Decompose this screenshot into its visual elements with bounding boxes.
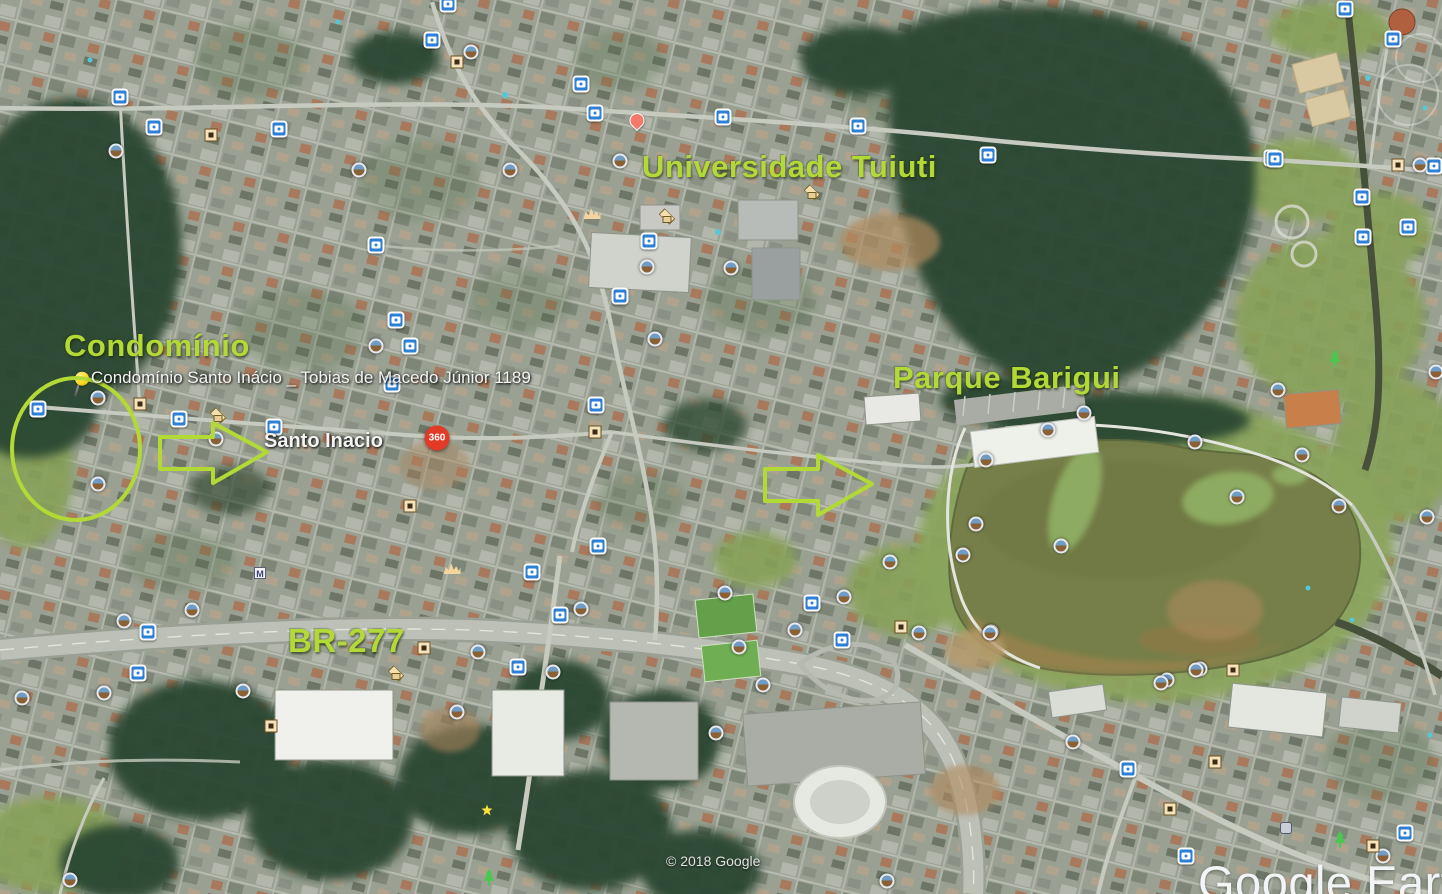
tree-icon[interactable]	[1329, 350, 1342, 367]
photo-frame-icon[interactable]	[1367, 840, 1380, 853]
panoramio-icon[interactable]	[709, 726, 724, 741]
panoramio-icon[interactable]	[1230, 490, 1245, 505]
panoramio-icon[interactable]	[1077, 406, 1092, 421]
camera-icon[interactable]	[588, 397, 605, 414]
camera-icon[interactable]	[368, 237, 385, 254]
panoramio-icon[interactable]	[969, 517, 984, 532]
camera-icon[interactable]	[402, 338, 419, 355]
photo-frame-icon[interactable]	[265, 720, 278, 733]
camera-icon[interactable]	[384, 376, 401, 393]
camera-icon[interactable]	[424, 32, 441, 49]
panoramio-icon[interactable]	[1295, 448, 1310, 463]
panoramio-icon[interactable]	[369, 339, 384, 354]
panoramio-icon[interactable]	[640, 260, 655, 275]
panoramio-icon[interactable]	[1420, 510, 1435, 525]
panoramio-icon[interactable]	[450, 705, 465, 720]
panoramio-icon[interactable]	[1429, 365, 1442, 380]
panoramio-icon[interactable]	[1054, 539, 1069, 554]
metro-icon[interactable]: M	[254, 567, 266, 579]
school-icon[interactable]	[387, 666, 404, 680]
panoramio-icon[interactable]	[1189, 663, 1204, 678]
panoramio-icon[interactable]	[983, 626, 998, 641]
photo-frame-icon[interactable]	[895, 621, 908, 634]
panoramio-icon[interactable]	[91, 391, 106, 406]
panoramio-icon[interactable]	[352, 163, 367, 178]
photo-frame-icon[interactable]	[451, 56, 464, 69]
camera-icon[interactable]	[140, 624, 157, 641]
pushpin-icon[interactable]	[72, 372, 90, 399]
camera-icon[interactable]	[1400, 219, 1417, 236]
photo-frame-icon[interactable]	[1164, 803, 1177, 816]
camera-icon[interactable]	[715, 109, 732, 126]
star-icon[interactable]	[482, 805, 493, 816]
school-icon[interactable]	[803, 185, 820, 199]
camera-icon[interactable]	[1397, 825, 1414, 842]
panoramio-icon[interactable]	[883, 555, 898, 570]
panoramio-icon[interactable]	[574, 602, 589, 617]
red-pin-icon[interactable]	[626, 110, 647, 131]
camera-icon[interactable]	[266, 419, 283, 436]
panoramio-icon[interactable]	[97, 686, 112, 701]
marker-layer: 360M	[0, 0, 1442, 894]
photo-frame-icon[interactable]	[1209, 756, 1222, 769]
panoramio-icon[interactable]	[837, 590, 852, 605]
misc-icon[interactable]	[1280, 822, 1292, 834]
panoramio-icon[interactable]	[63, 873, 78, 888]
camera-icon[interactable]	[1178, 848, 1195, 865]
camera-icon[interactable]	[1120, 761, 1137, 778]
camera-icon[interactable]	[1354, 189, 1371, 206]
panoramio-icon[interactable]	[648, 332, 663, 347]
panoramio-icon[interactable]	[1271, 383, 1286, 398]
camera-icon[interactable]	[1385, 31, 1402, 48]
camera-icon[interactable]	[612, 288, 629, 305]
photo-frame-icon[interactable]	[205, 129, 218, 142]
photo-frame-icon[interactable]	[1227, 664, 1240, 677]
panoramio-icon[interactable]	[109, 144, 124, 159]
panoramio-icon[interactable]	[185, 603, 200, 618]
camera-icon[interactable]	[524, 564, 541, 581]
panoramio-icon[interactable]	[1041, 423, 1056, 438]
panoramio-icon[interactable]	[1332, 499, 1347, 514]
panoramio-icon[interactable]	[732, 640, 747, 655]
panoramio-icon[interactable]	[724, 261, 739, 276]
camera-icon[interactable]	[1337, 1, 1354, 18]
photo-frame-icon[interactable]	[134, 398, 147, 411]
photo-frame-icon[interactable]	[589, 426, 602, 439]
panoramio-icon[interactable]	[1188, 435, 1203, 450]
panoramio-icon[interactable]	[236, 684, 251, 699]
camera-icon[interactable]	[850, 118, 867, 135]
panoramio-icon[interactable]	[756, 678, 771, 693]
camera-icon[interactable]	[510, 659, 527, 676]
camera-icon[interactable]	[573, 76, 590, 93]
panoramio-icon[interactable]	[91, 477, 106, 492]
camera-icon[interactable]	[1267, 151, 1284, 168]
photo-frame-icon[interactable]	[418, 642, 431, 655]
panoramio-icon[interactable]	[1066, 735, 1081, 750]
camera-icon[interactable]	[1426, 158, 1442, 175]
map-canvas[interactable]: 360M Condomínio Universidade Tuiuti Parq…	[0, 0, 1442, 894]
panoramio-icon[interactable]	[788, 623, 803, 638]
panoramio-icon[interactable]	[464, 45, 479, 60]
tree-icon[interactable]	[483, 869, 496, 886]
camera-icon[interactable]	[30, 401, 47, 418]
photo-360-icon[interactable]: 360	[425, 426, 450, 451]
panoramio-icon[interactable]	[1154, 676, 1169, 691]
camera-icon[interactable]	[440, 0, 457, 13]
camera-icon[interactable]	[112, 89, 129, 106]
panoramio-icon[interactable]	[880, 874, 895, 889]
panoramio-icon[interactable]	[979, 453, 994, 468]
camera-icon[interactable]	[804, 595, 821, 612]
camera-icon[interactable]	[590, 538, 607, 555]
photo-frame-icon[interactable]	[404, 500, 417, 513]
camera-icon[interactable]	[388, 312, 405, 329]
photo-frame-icon[interactable]	[1392, 159, 1405, 172]
school-icon[interactable]	[209, 408, 226, 422]
camera-icon[interactable]	[587, 105, 604, 122]
panoramio-icon[interactable]	[471, 645, 486, 660]
panoramio-icon[interactable]	[718, 586, 733, 601]
camera-icon[interactable]	[1355, 229, 1372, 246]
camera-icon[interactable]	[130, 665, 147, 682]
camera-icon[interactable]	[980, 147, 997, 164]
camera-icon[interactable]	[271, 121, 288, 138]
camera-icon[interactable]	[552, 607, 569, 624]
camera-icon[interactable]	[834, 632, 851, 649]
panoramio-icon[interactable]	[503, 163, 518, 178]
camera-icon[interactable]	[641, 233, 658, 250]
panoramio-icon[interactable]	[613, 154, 628, 169]
panoramio-icon[interactable]	[546, 665, 561, 680]
people-icon[interactable]	[444, 562, 461, 574]
school-icon[interactable]	[658, 209, 675, 223]
panoramio-icon[interactable]	[209, 432, 224, 447]
camera-icon[interactable]	[146, 119, 163, 136]
panoramio-icon[interactable]	[15, 691, 30, 706]
panoramio-icon[interactable]	[1413, 158, 1428, 173]
camera-icon[interactable]	[171, 411, 188, 428]
panoramio-icon[interactable]	[912, 626, 927, 641]
panoramio-icon[interactable]	[117, 614, 132, 629]
tree-icon[interactable]	[1334, 831, 1347, 848]
people-icon[interactable]	[584, 207, 601, 219]
panoramio-icon[interactable]	[956, 548, 971, 563]
